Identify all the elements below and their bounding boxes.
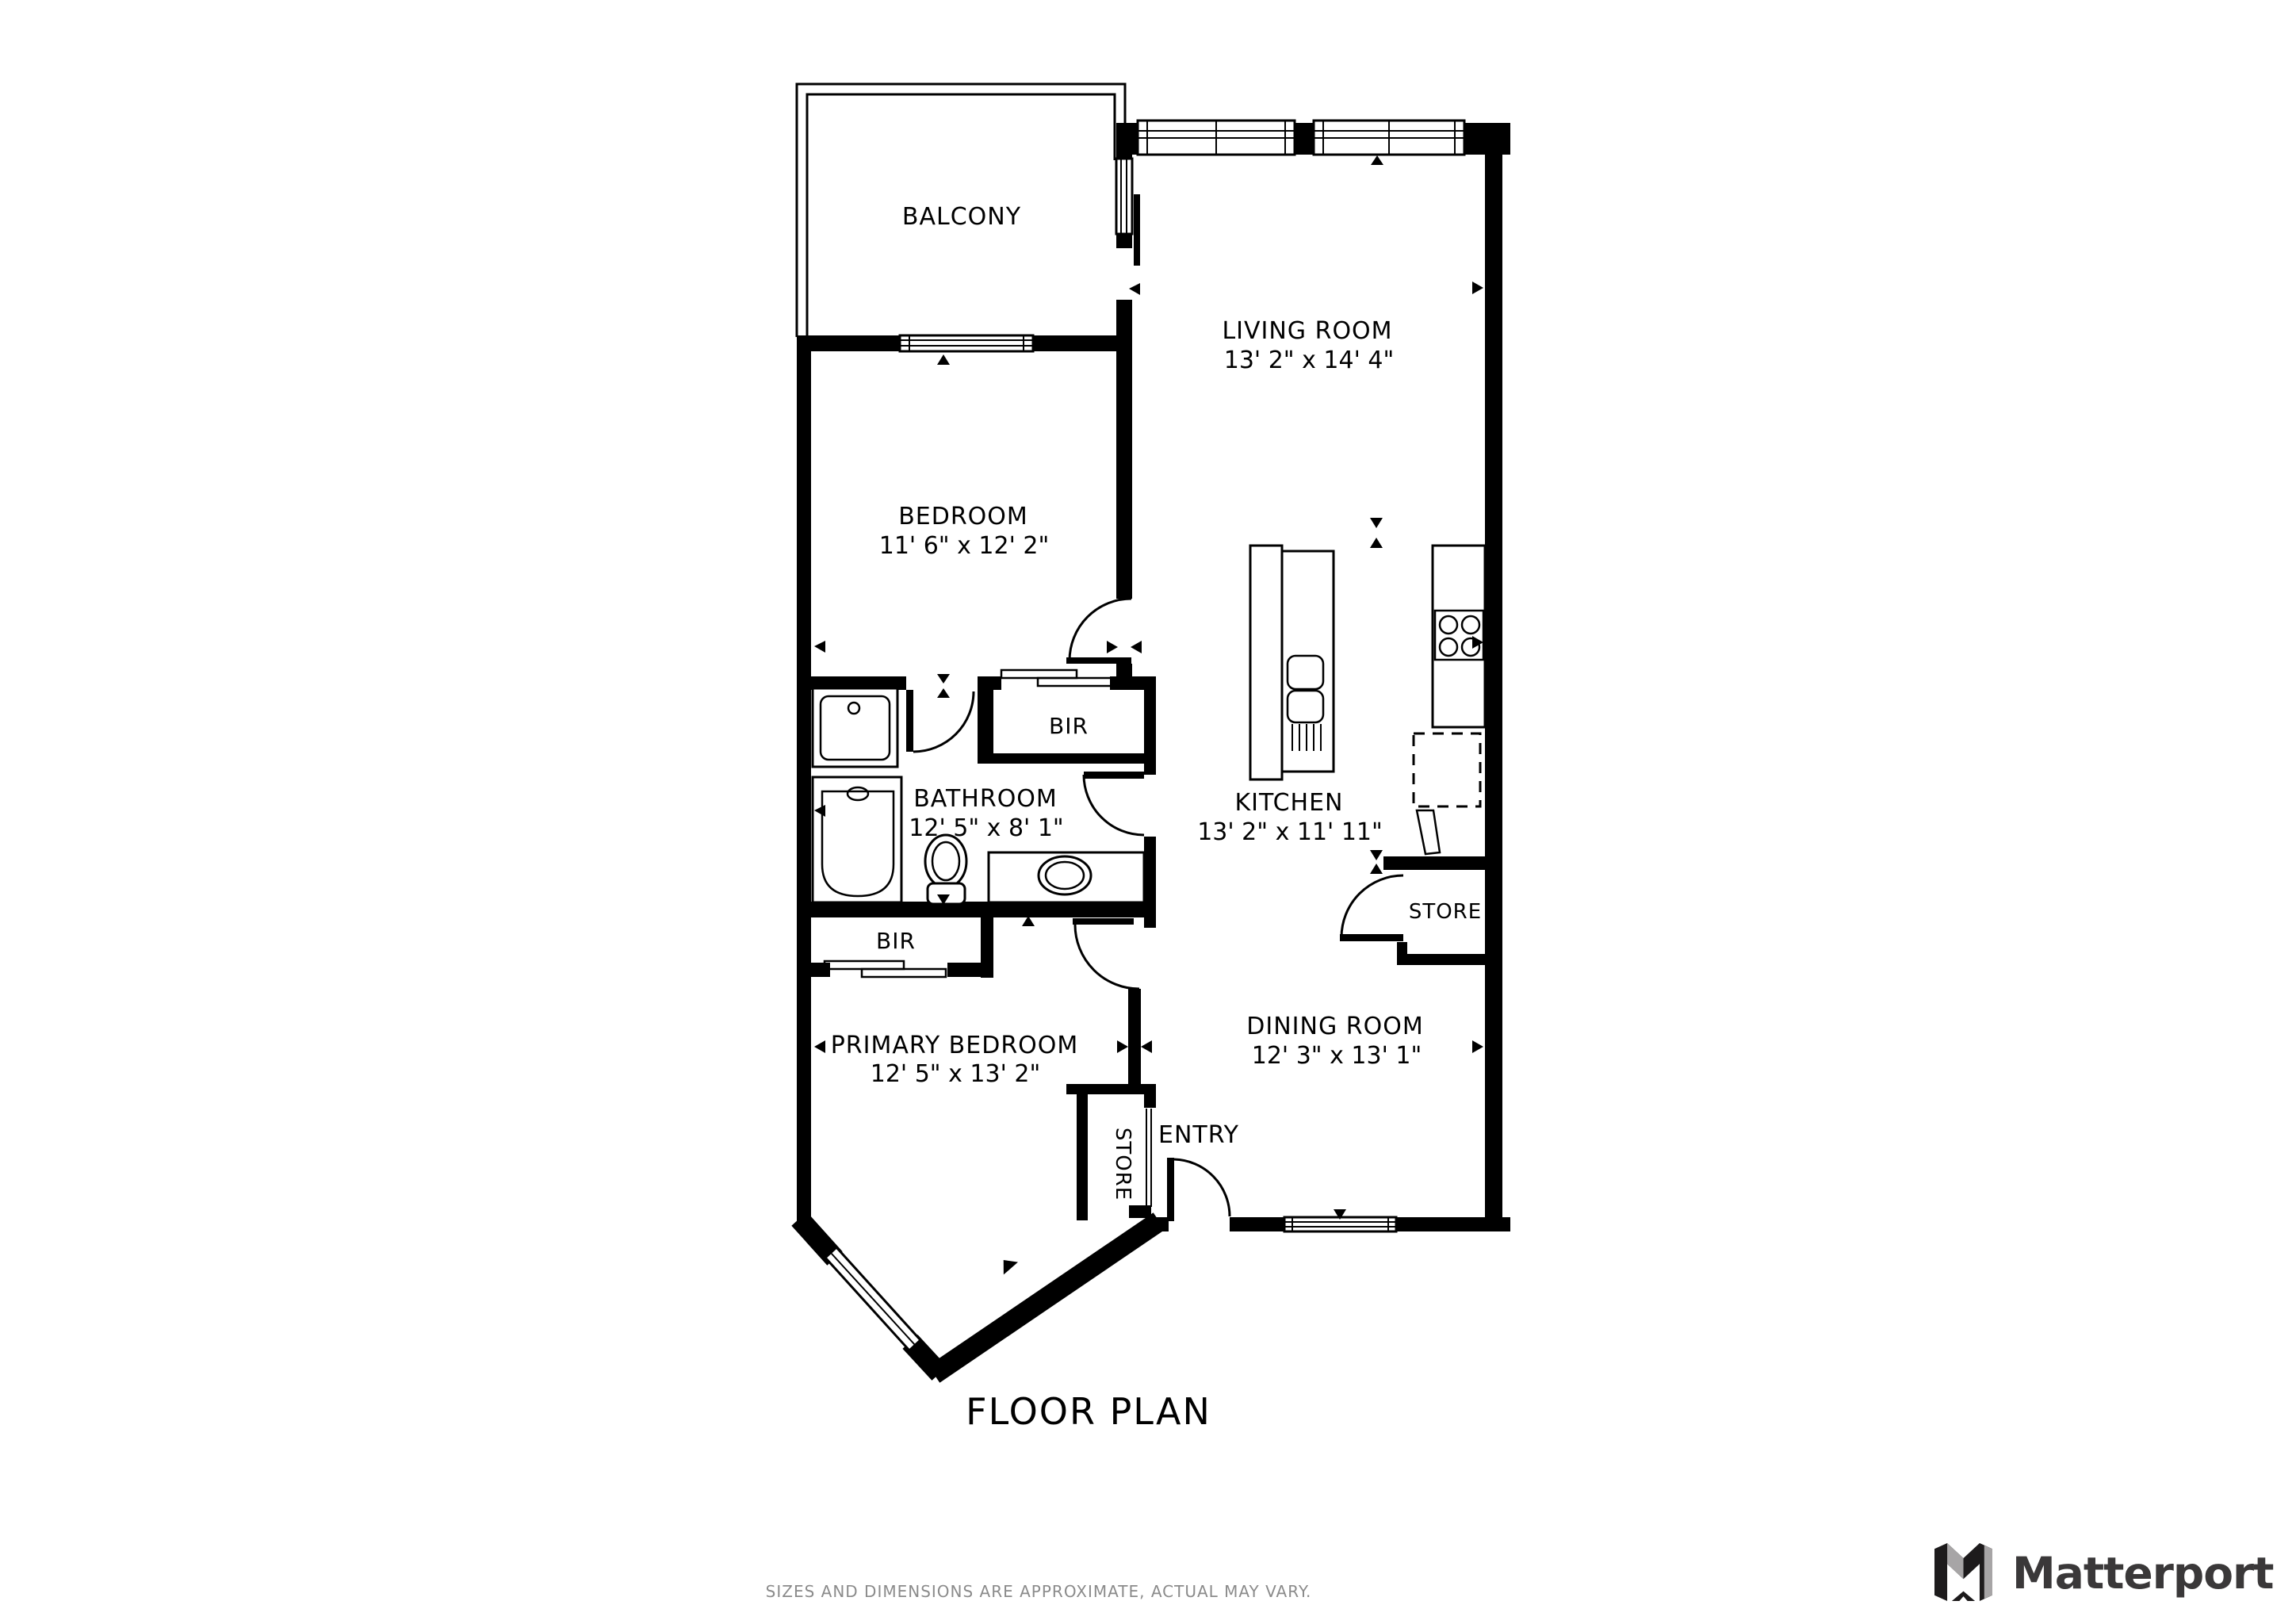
floor-plan-canvas: BALCONY LIVING ROOM 13' 2" x 14' 4" BEDR…	[0, 0, 2296, 1624]
sliding-door-icon	[1146, 1109, 1151, 1207]
cabinet-wedge-icon	[1417, 810, 1440, 854]
dining-room-label: DINING ROOM	[1246, 1013, 1423, 1040]
cooktop-icon	[1433, 546, 1485, 727]
door-icon	[906, 690, 974, 752]
vanity-sink-icon	[989, 852, 1144, 902]
bathroom-dims: 12' 5" x 8' 1"	[909, 814, 1063, 842]
bedroom-dims: 11' 6" x 12' 2"	[879, 532, 1050, 560]
entry-label: ENTRY	[1158, 1121, 1239, 1149]
primary-bedroom-label: PRIMARY BEDROOM	[831, 1032, 1079, 1059]
store-entry-label: STORE	[1111, 1128, 1135, 1201]
door-icon	[1340, 875, 1403, 941]
door-icon	[1066, 599, 1131, 664]
bir-bedroom-label: BIR	[1049, 713, 1089, 739]
window-icon	[900, 335, 1033, 351]
window-icon	[1314, 121, 1464, 155]
room-labels: BALCONY LIVING ROOM 13' 2" x 14' 4" BEDR…	[831, 203, 1482, 1201]
matterport-wordmark: Matterport	[2012, 1548, 2274, 1599]
bathroom-label: BATHROOM	[913, 785, 1058, 813]
living-room-dims: 13' 2" x 14' 4"	[1224, 347, 1395, 374]
floor-plan-page: BALCONY LIVING ROOM 13' 2" x 14' 4" BEDR…	[0, 0, 2296, 1624]
door-icon	[1073, 918, 1139, 989]
door-icon	[1084, 772, 1144, 835]
diagonal-walls	[799, 1219, 1159, 1374]
window-icon	[1116, 159, 1132, 234]
bedroom-label: BEDROOM	[898, 503, 1028, 530]
kitchen-dims: 13' 2" x 11' 11"	[1197, 818, 1383, 846]
brand-logo: Matterport	[1934, 1543, 2274, 1601]
living-room-label: LIVING ROOM	[1222, 317, 1392, 345]
toilet-icon	[925, 835, 966, 904]
kitchen-label: KITCHEN	[1235, 789, 1344, 817]
door-icon	[1167, 1158, 1230, 1221]
bathtub-icon	[813, 777, 901, 902]
window-icon	[1284, 1217, 1396, 1231]
sliding-door-icon	[1134, 194, 1140, 266]
appliance-space-dashed-icon	[1414, 733, 1480, 806]
store-kitchen-label: STORE	[1409, 900, 1482, 924]
window-icon	[825, 1247, 920, 1350]
sliding-door-icon	[1001, 670, 1114, 686]
shower-icon	[813, 688, 897, 767]
dining-room-dims: 12' 3" x 13' 1"	[1252, 1042, 1422, 1070]
kitchen-island-icon	[1250, 546, 1334, 779]
sliding-door-icon	[825, 961, 946, 977]
bir-primary-label: BIR	[876, 928, 916, 954]
matterport-mark-icon	[1934, 1543, 1992, 1601]
balcony-label: BALCONY	[902, 203, 1021, 231]
disclaimer-text: SIZES AND DIMENSIONS ARE APPROXIMATE, AC…	[766, 1582, 1312, 1601]
primary-bedroom-dims: 12' 5" x 13' 2"	[871, 1060, 1041, 1088]
page-title: FLOOR PLAN	[966, 1390, 1211, 1433]
window-icon	[1138, 121, 1295, 155]
